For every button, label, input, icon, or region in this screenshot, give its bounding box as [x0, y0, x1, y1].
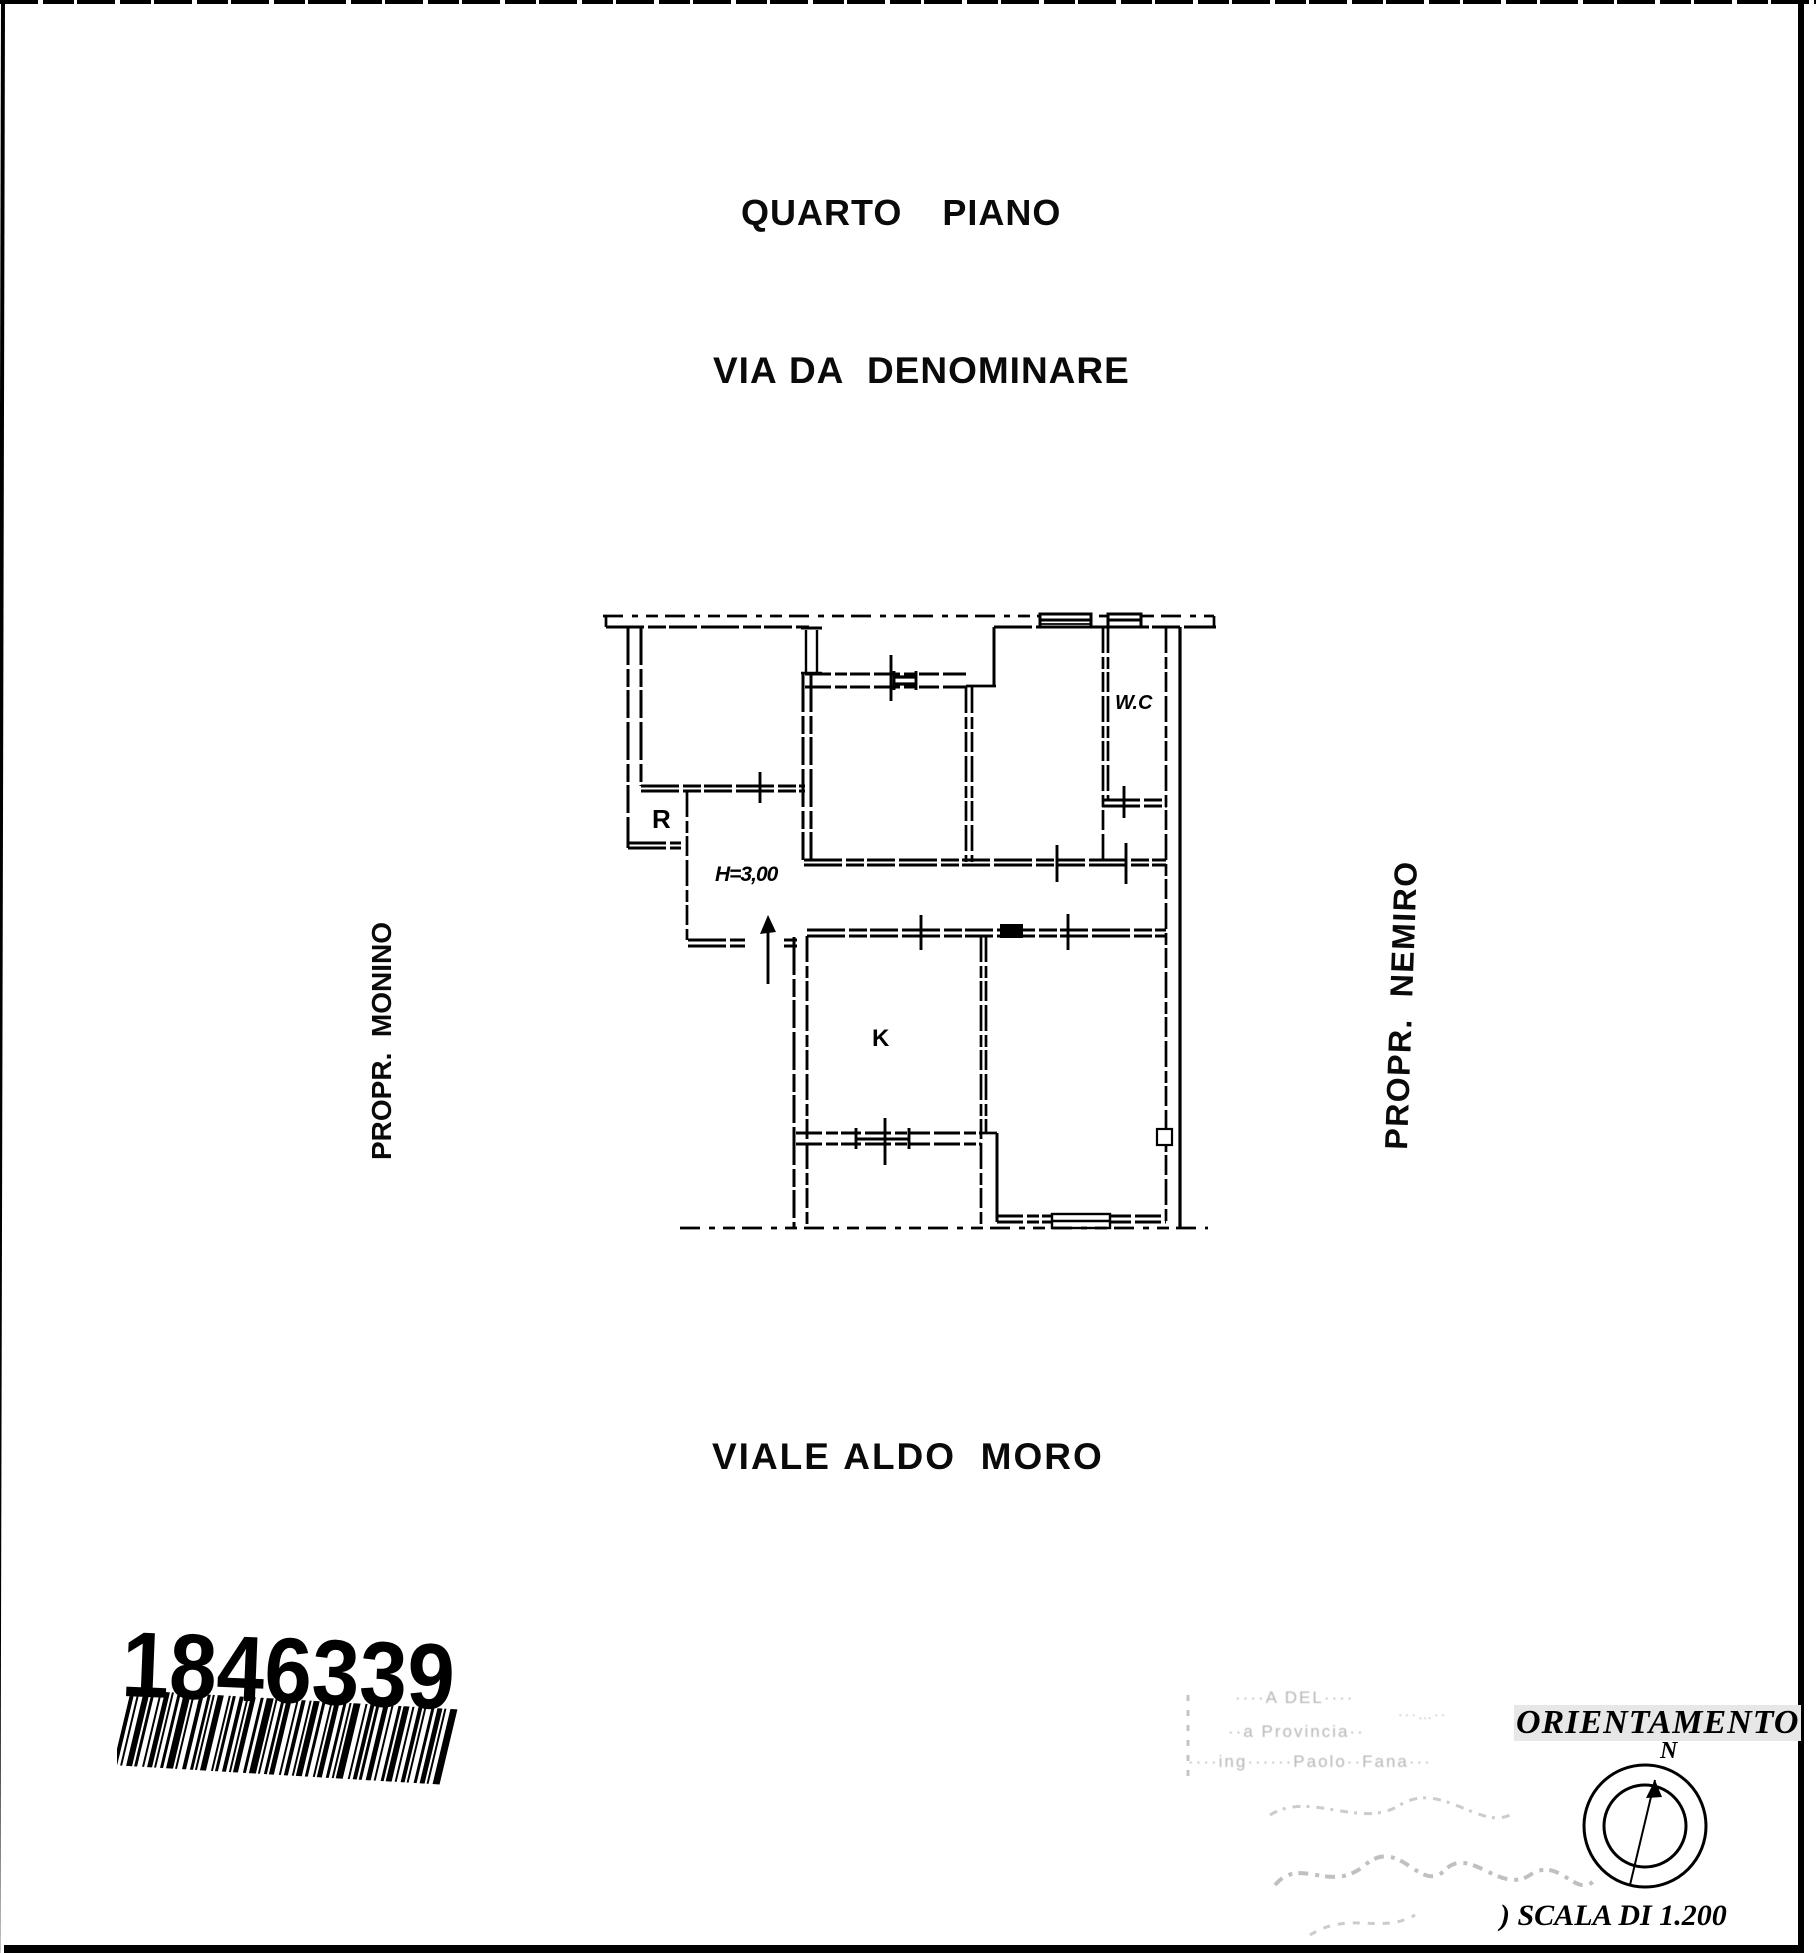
svg-text:R: R: [652, 804, 671, 834]
svg-text:H=3,00: H=3,00: [715, 863, 779, 886]
svg-text:K: K: [872, 1025, 890, 1052]
svg-text:W.C: W.C: [1115, 692, 1153, 714]
